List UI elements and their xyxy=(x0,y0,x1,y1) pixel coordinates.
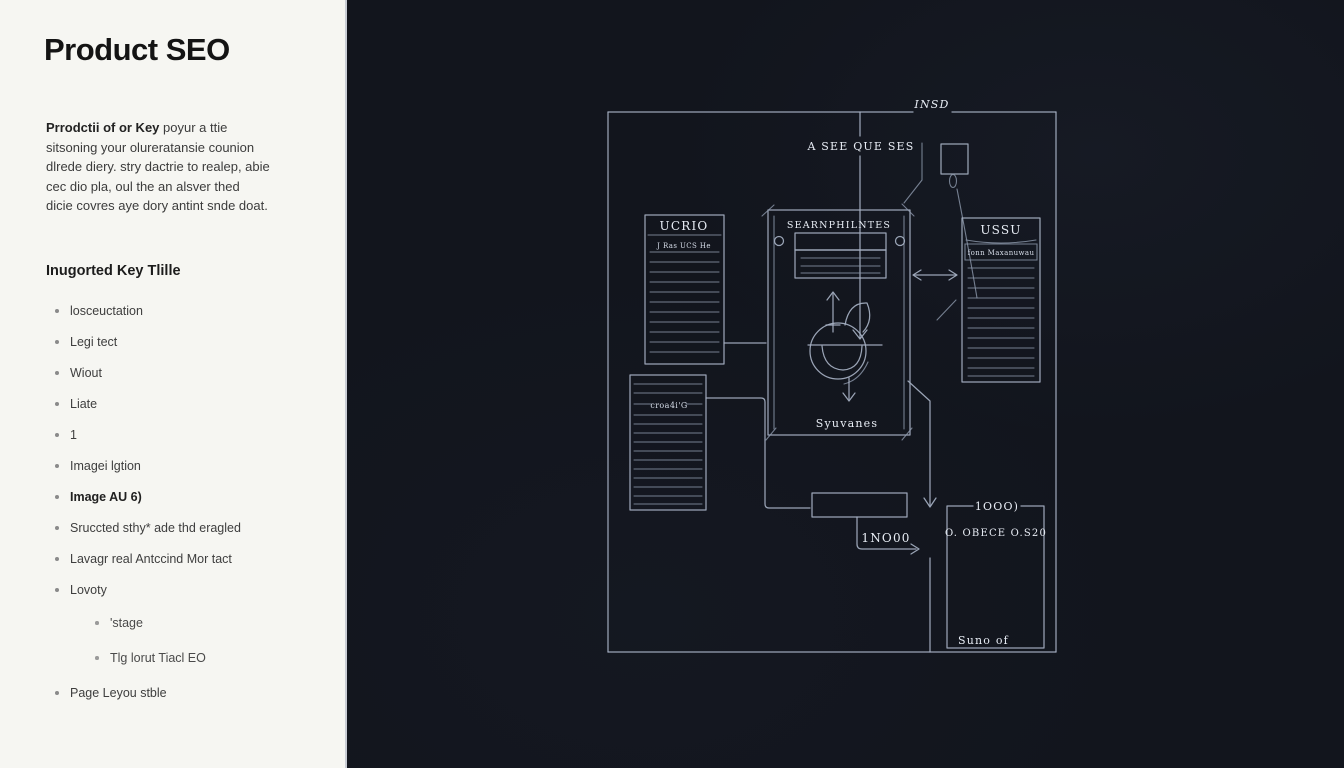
key-list: losceuctation Legi tect Wiout Liate 1 Im… xyxy=(46,303,326,716)
text-lines xyxy=(650,262,719,352)
left-box-ucrio: UCRIO J Ras UCS He xyxy=(645,215,724,364)
double-arrow xyxy=(913,270,957,280)
list-item: Sruccted sthy* ade thd eragled xyxy=(46,520,326,537)
center-box-title: SEARNPHILNTES xyxy=(787,220,891,231)
seo-architecture-diagram: INSD A SEE QUE SES UCRIO J Ras UCS He xyxy=(347,0,1344,768)
right-box-subtitle: fonn Maxanuwau xyxy=(968,249,1035,257)
outer-frame-label: INSD xyxy=(913,98,949,111)
list-item: 'stage xyxy=(86,615,326,632)
list-item: 1 xyxy=(46,427,326,444)
list-item: Lavagr real Antccind Mor tact xyxy=(46,551,326,568)
text-lines xyxy=(968,268,1034,376)
center-box-search: SEARNPHILNTES Syuvanes xyxy=(762,204,914,440)
section-heading: Inugorted Key Tlille xyxy=(46,263,181,279)
search-bar xyxy=(795,233,886,250)
list-item: Imagei lgtion xyxy=(46,458,326,475)
text-lines xyxy=(801,258,880,273)
result-box-bottom-label: Suno of xyxy=(958,634,1009,647)
vertical-drop-arrow xyxy=(908,381,936,652)
list-item: Lovoty 'stage Tlg lorut Tiacl EO xyxy=(46,582,326,667)
connector-lowerleft-bar xyxy=(706,398,810,508)
square-node xyxy=(941,144,968,174)
list-item: Page Leyou stble xyxy=(46,685,326,702)
connector-label: 1NO00 xyxy=(861,531,910,545)
page-title: Product SEO xyxy=(44,32,230,68)
list-item: Wiout xyxy=(46,365,326,382)
nested-list: 'stage Tlg lorut Tiacl EO xyxy=(86,615,326,667)
right-box-ussu: USSU fonn Maxanuwau xyxy=(962,218,1040,382)
connector-1no00: 1NO00 xyxy=(857,517,919,554)
list-item: losceuctation xyxy=(46,303,326,320)
lower-left-box: croa4i'G xyxy=(630,375,706,510)
result-box-top-label: 1OOO) xyxy=(975,500,1019,513)
intro-paragraph: Prrodctii of or Key poyur a ttie sitsoni… xyxy=(46,118,270,216)
left-dot-marker xyxy=(775,237,784,246)
top-right-node xyxy=(904,143,977,320)
flow-label: A SEE QUE SES xyxy=(806,140,914,153)
down-arrow-icon xyxy=(843,378,855,401)
list-item: Tlg lorut Tiacl EO xyxy=(86,650,326,667)
left-box-subtitle: J Ras UCS He xyxy=(656,242,711,250)
results-panel xyxy=(795,250,886,278)
right-dot-marker xyxy=(896,237,905,246)
result-box: 1OOO) O. OBECE O.S20 Suno of xyxy=(945,500,1047,648)
list-item-label: Lovoty xyxy=(70,583,107,597)
content-panel: Product SEO Prrodctii of or Key poyur a … xyxy=(0,0,347,768)
up-arrow-icon xyxy=(826,292,840,332)
list-item: Image AU 6) xyxy=(46,489,326,506)
result-box-text: O. OBECE O.S20 xyxy=(945,528,1047,539)
bottom-bar-box xyxy=(812,493,907,517)
pin-icon xyxy=(950,175,957,188)
center-box-bottom-label: Syuvanes xyxy=(816,417,878,430)
intro-lead: Prrodctii of or Key xyxy=(46,120,159,135)
magnifier-icon xyxy=(808,303,882,384)
left-box-title: UCRIO xyxy=(660,219,709,233)
right-box-title: USSU xyxy=(980,223,1021,237)
lower-left-box-label: croa4i'G xyxy=(650,401,687,410)
list-item: Legi tect xyxy=(46,334,326,351)
list-item: Liate xyxy=(46,396,326,413)
